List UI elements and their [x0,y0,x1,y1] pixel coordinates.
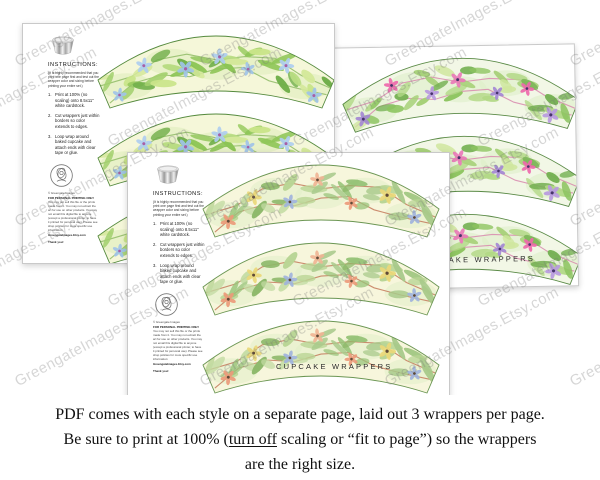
cupcake-wrapper-shape [201,313,441,395]
instruction-step-2: 2. Cut wrappers just within borders so c… [153,242,205,259]
instructions-note: (It is highly recommended that you print… [153,200,205,218]
instructions-title: INSTRUCTIONS: [48,62,100,68]
caption-text: PDF comes with each style on a separate … [0,403,600,477]
caption-line-3: are the right size. [0,453,600,478]
cupcake-liner-image [154,163,182,186]
page-peach-floral: INSTRUCTIONS: (It is highly recommended … [127,152,450,395]
product-listing-image: INSTRUCTIONS: (It is highly recommended … [0,0,600,480]
cupcake-wrapper-shape [340,48,578,136]
caption-line-1: PDF comes with each style on a separate … [0,403,600,428]
personal-use-body: You may not sell this file or the prints… [48,201,98,232]
legal-text-block: © Greengate Images FOR PERSONAL PRINTING… [48,192,98,246]
instructions-title: INSTRUCTIONS: [153,191,205,197]
greengate-logo-stamp [154,292,179,317]
instruction-step-1: 1. Print at 100% (no scaling) onto 8.5x1… [153,221,205,238]
cupcake-wrapper-shape [201,157,441,241]
greengate-logo-stamp [49,163,74,188]
cupcake-wrapper-shape [96,28,334,112]
personal-use-body: You may not sell this file or the prints… [153,330,203,361]
instructions-column: INSTRUCTIONS: (It is highly recommended … [153,163,205,374]
pdf-pages-mockup: INSTRUCTIONS: (It is highly recommended … [0,0,600,395]
instruction-step-2: 2. Cut wrappers just within borders so c… [48,113,100,130]
thank-you-note: Thank you! [48,241,98,245]
instructions-column: INSTRUCTIONS: (It is highly recommended … [48,34,100,245]
copyright-line: © Greengate Images [48,192,98,196]
shop-url: GreengateImages.Etsy.com [153,363,203,367]
instruction-step-3: 3. Loop wrap around baked cupcake and at… [153,263,205,285]
cupcake-liner-image [49,34,77,57]
watermark-text: GreengateImages.Etsy.com [567,284,600,390]
instruction-step-3: 3. Loop wrap around baked cupcake and at… [48,134,100,156]
page-title-cupcake-wrappers: CUPCAKE WRAPPERS [276,362,392,371]
shop-url: GreengateImages.Etsy.com [48,234,98,238]
wrapper-column [201,157,443,395]
cupcake-wrapper-shape [201,235,441,319]
instructions-note: (It is highly recommended that you print… [48,71,100,89]
underlined-turn-off: turn off [229,431,277,448]
page-content: INSTRUCTIONS: (It is highly recommended … [128,153,449,395]
legal-text-block: © Greengate Images FOR PERSONAL PRINTING… [153,321,203,375]
thank-you-note: Thank you! [153,370,203,374]
copyright-line: © Greengate Images [153,321,203,325]
instruction-step-1: 1. Print at 100% (no scaling) onto 8.5x1… [48,92,100,109]
caption-line-2: Be sure to print at 100% (turn off scali… [0,428,600,453]
